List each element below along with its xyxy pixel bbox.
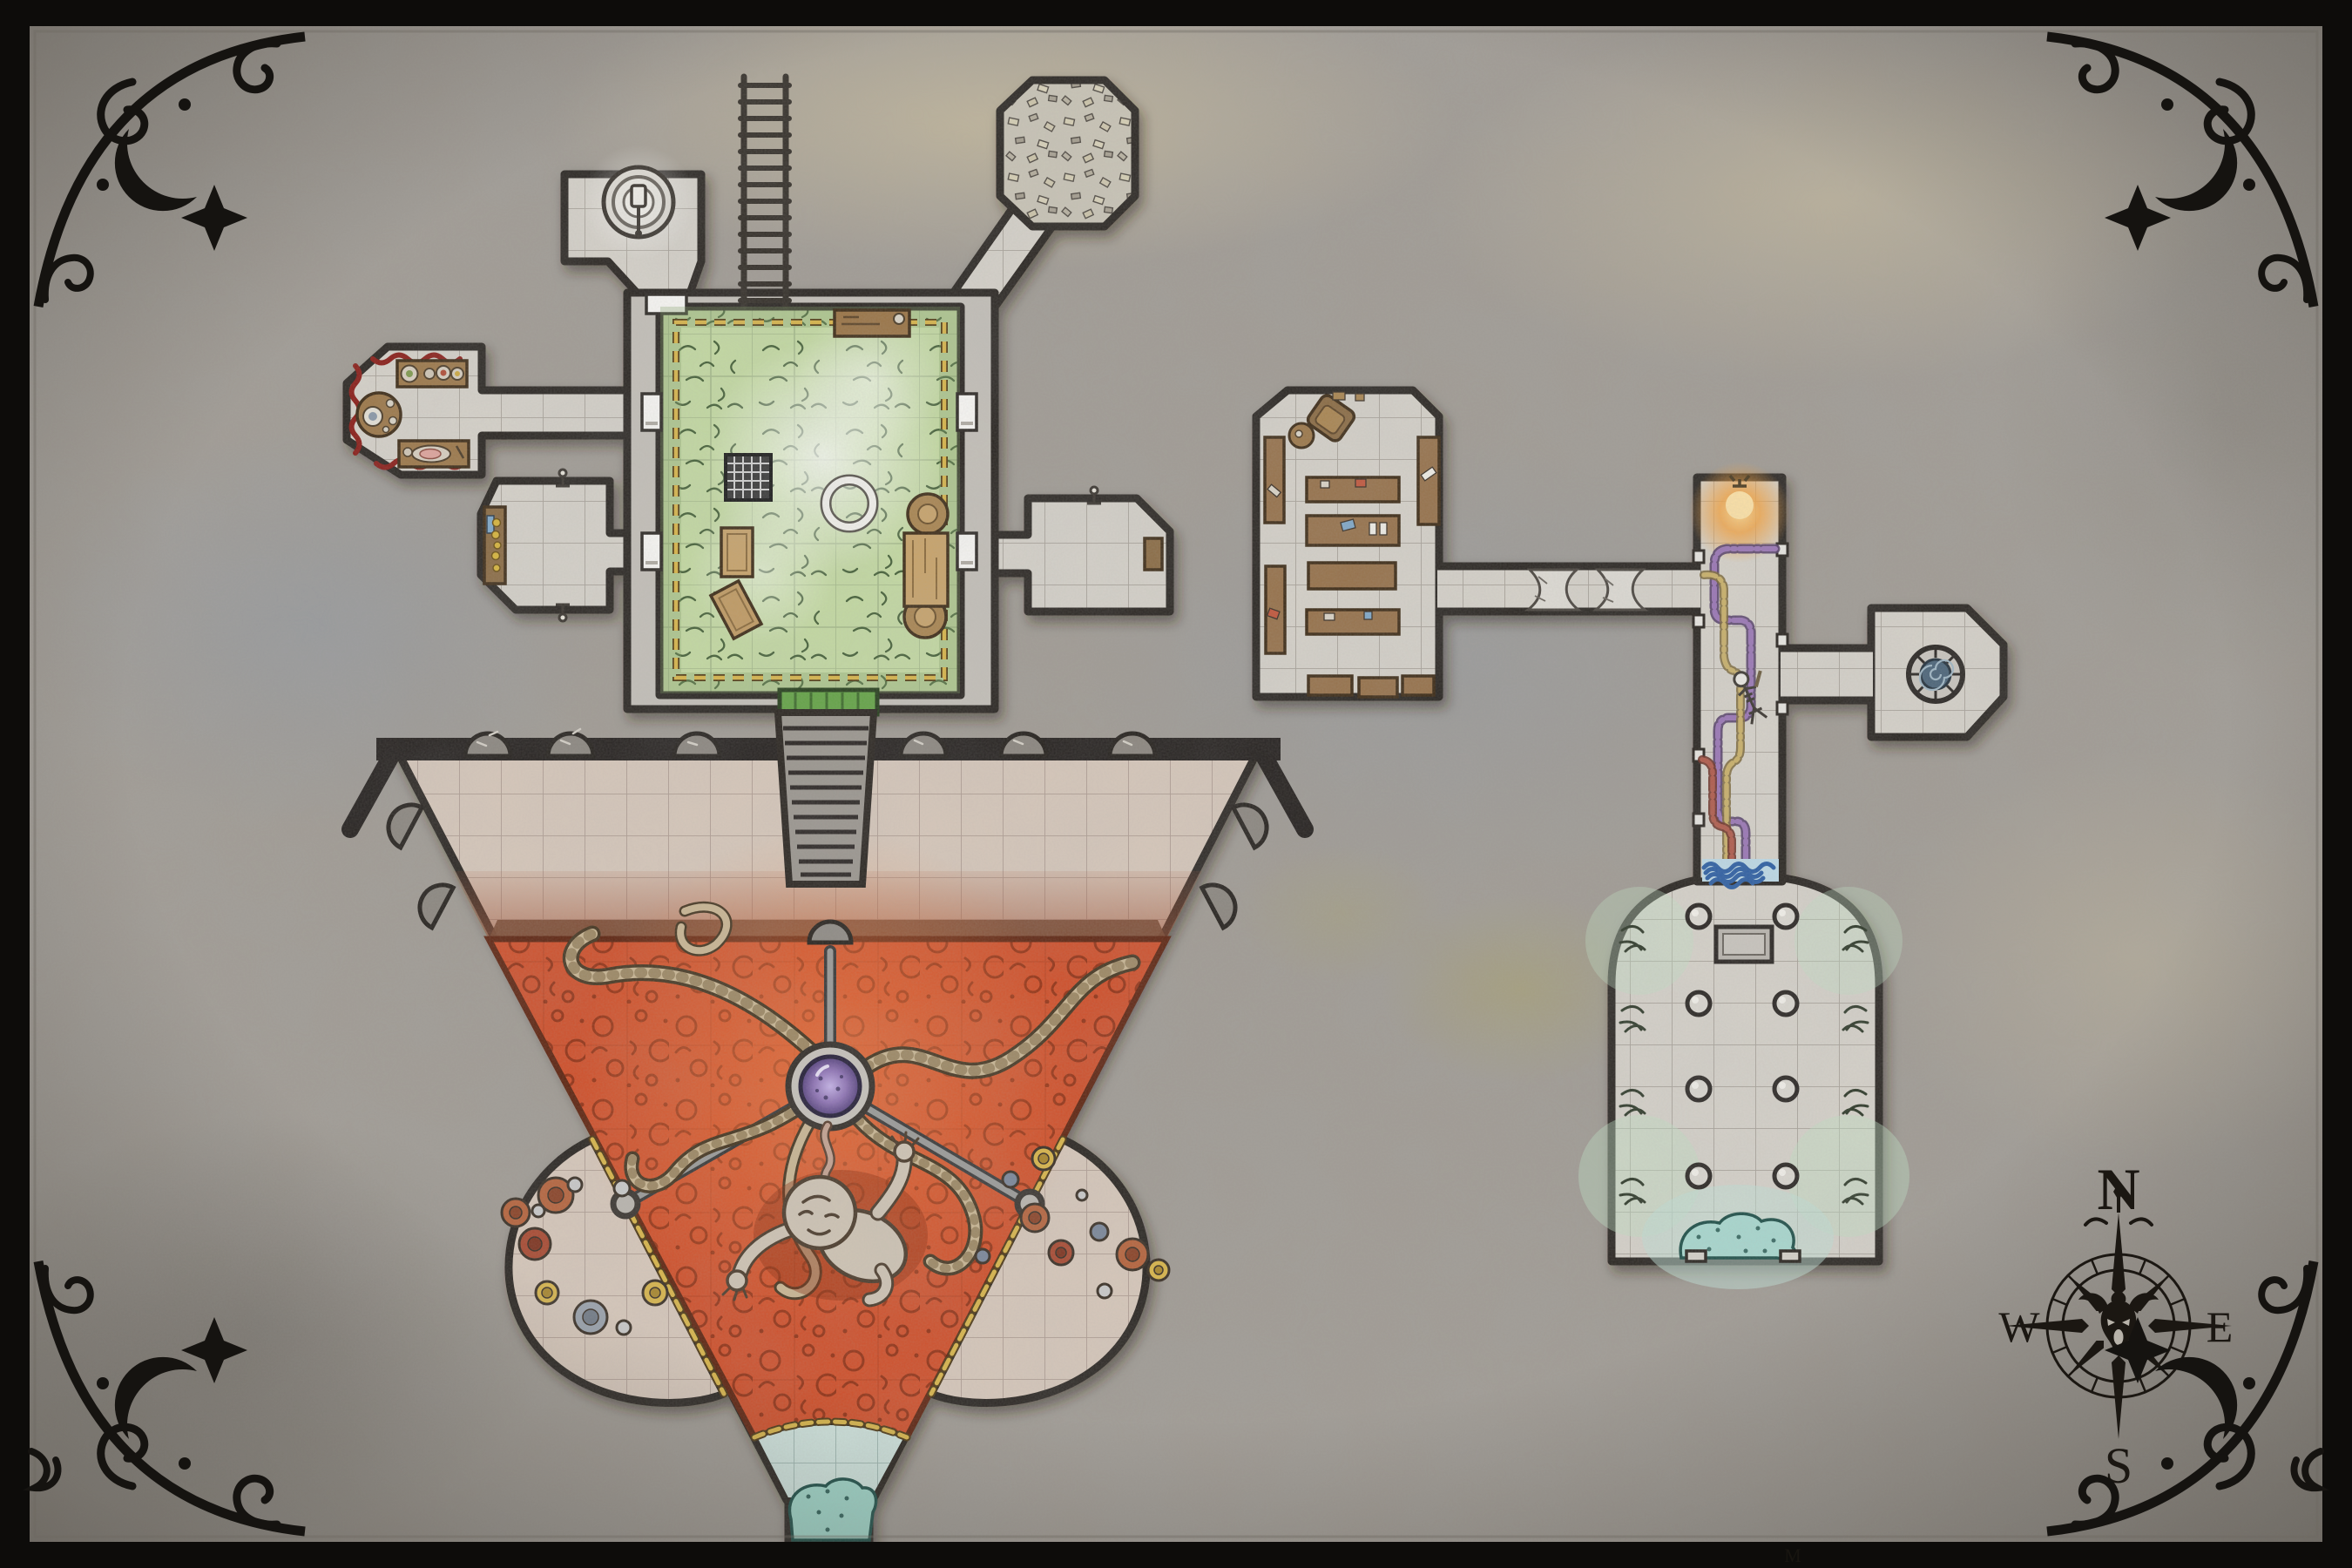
compass-west-label: W: [1998, 1302, 2040, 1351]
compass-north-label: N: [2097, 1156, 2139, 1222]
compass-east-label: E: [2207, 1302, 2234, 1351]
artist-signature: M: [1784, 1544, 1801, 1566]
dungeon-map: N S W E M: [0, 0, 2352, 1568]
